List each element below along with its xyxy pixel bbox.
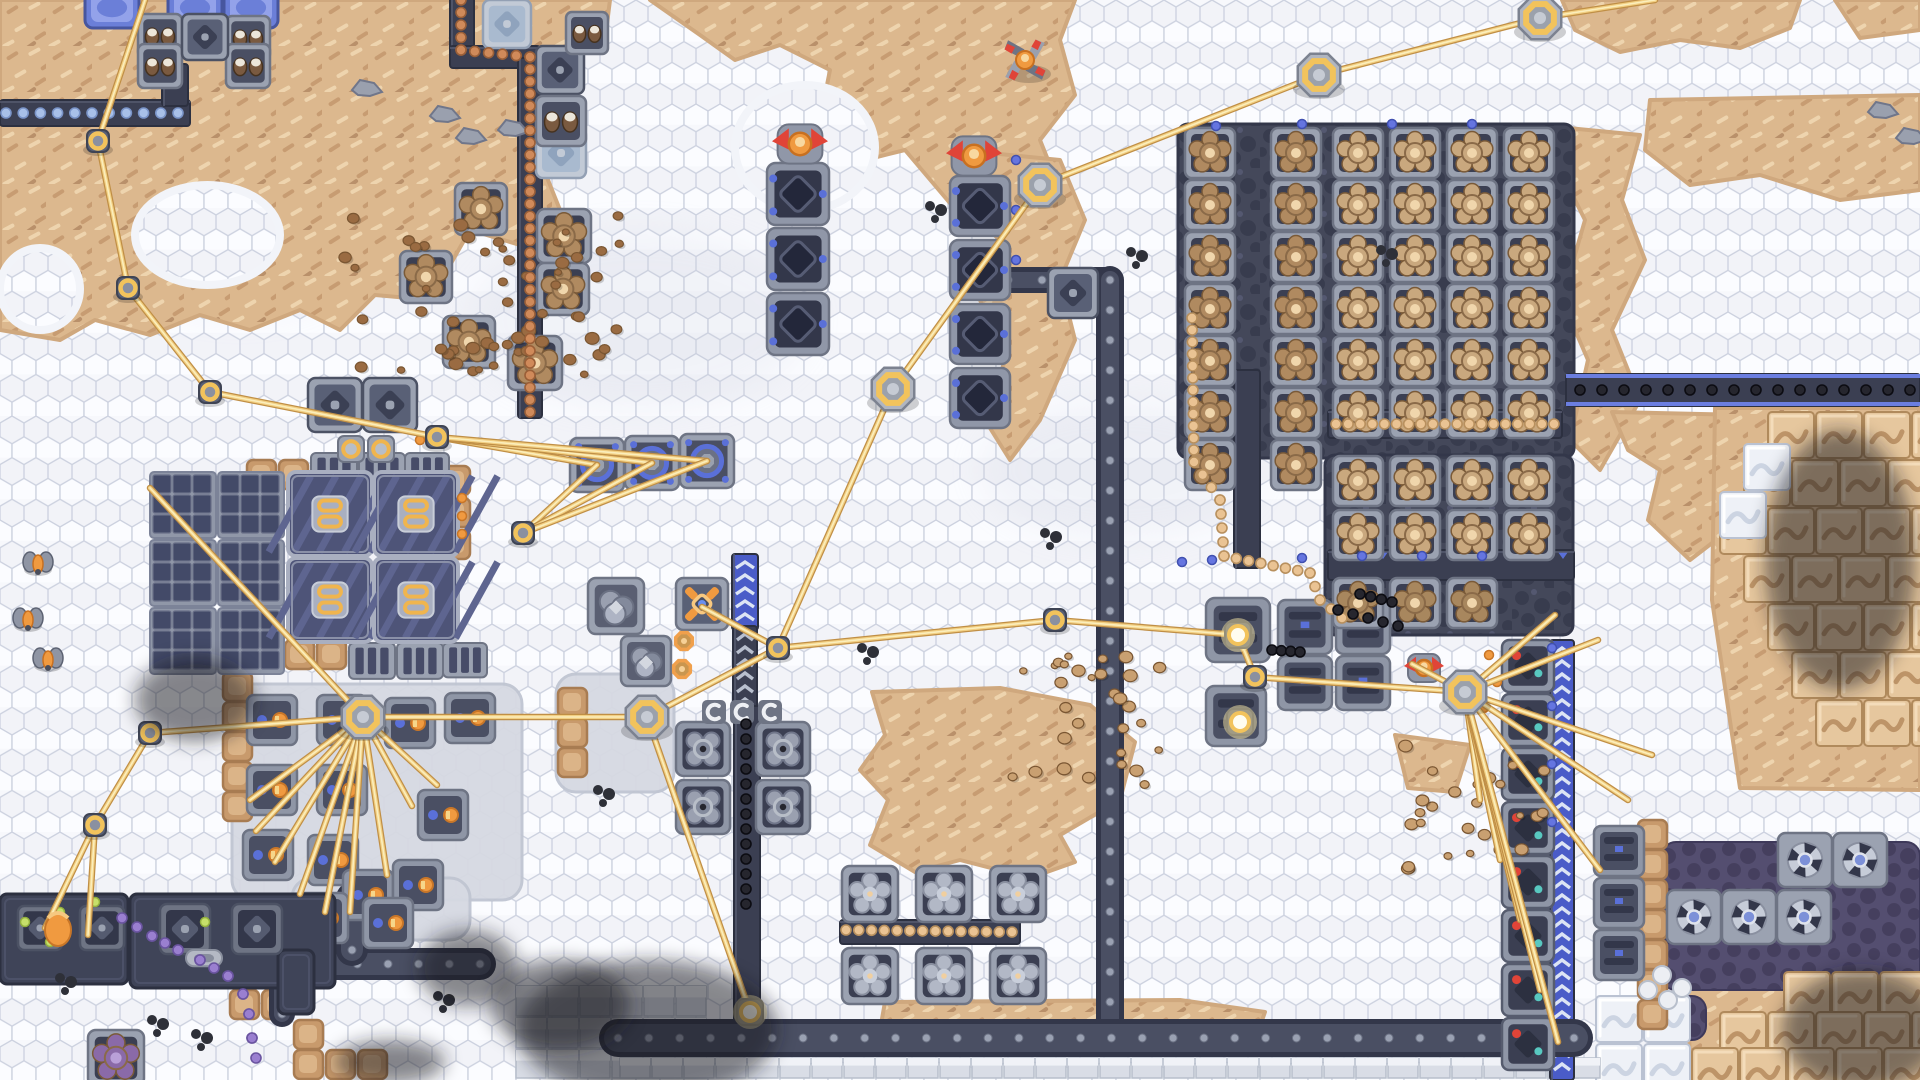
panel-block[interactable] [443, 643, 487, 677]
smelter-machine[interactable] [138, 44, 182, 88]
assembler-machine[interactable] [483, 0, 531, 48]
blue-item-dot [1548, 760, 1557, 769]
wall-rivet [1106, 366, 1114, 374]
lime-item-dot [201, 918, 210, 927]
wall-rivet [892, 1034, 900, 1042]
wall-rivet [1200, 1034, 1208, 1042]
sandstone-cliff-row [1816, 700, 1920, 746]
crusher-machine[interactable] [621, 636, 671, 686]
turret[interactable] [946, 136, 1002, 175]
mining-drill[interactable] [1271, 128, 1321, 178]
mining-drill[interactable] [1504, 456, 1554, 506]
reactor-machine[interactable] [950, 176, 1010, 236]
mining-drill[interactable] [1185, 128, 1235, 178]
turret[interactable] [772, 124, 828, 163]
power-pole-small[interactable] [1240, 666, 1270, 692]
wall-rivet [1447, 1034, 1455, 1042]
game-viewport [0, 0, 1920, 1080]
pump-machine[interactable] [842, 866, 898, 922]
mining-drill[interactable] [1271, 284, 1321, 334]
mining-drill[interactable] [1447, 128, 1497, 178]
mining-drill[interactable] [1447, 284, 1497, 334]
smoke-soot [1765, 430, 1915, 690]
mining-drill[interactable] [1504, 128, 1554, 178]
mining-drill[interactable] [1333, 510, 1383, 560]
brick-tile [558, 748, 587, 777]
blue-item-dot [1298, 554, 1307, 563]
inserter[interactable] [758, 700, 782, 724]
wall-rivet [1138, 1034, 1146, 1042]
lamp[interactable] [1221, 618, 1255, 652]
bug-unit[interactable] [13, 608, 43, 632]
wall-rivet [1015, 1034, 1023, 1042]
blue-item-dot [1388, 120, 1397, 129]
inserter[interactable] [702, 700, 726, 724]
mining-drill[interactable] [1504, 510, 1554, 560]
wall-rivet [799, 1034, 807, 1042]
gate-machine[interactable] [1667, 890, 1721, 944]
wall-rivet [830, 1034, 838, 1042]
assembler-machine[interactable] [1048, 268, 1098, 318]
mining-drill[interactable] [1447, 456, 1497, 506]
pump-machine[interactable] [990, 866, 1046, 922]
mining-drill[interactable] [1185, 232, 1235, 282]
power-pole-small[interactable] [83, 130, 113, 156]
wall-rivet [384, 960, 392, 968]
power-pole-small[interactable] [80, 814, 110, 840]
blue-item-dot [1478, 552, 1487, 561]
wall-rivet [1106, 276, 1114, 284]
power-pole-small[interactable] [763, 637, 793, 663]
mining-drill[interactable] [1185, 180, 1235, 230]
conveyor-belt[interactable] [1234, 370, 1260, 568]
mining-drill[interactable] [1504, 232, 1554, 282]
smoke-soot [135, 658, 255, 742]
wall-rivet [1106, 908, 1114, 916]
blue-item-dot [1548, 644, 1557, 653]
wall-rivet [1107, 1034, 1115, 1042]
blue-item-dot [1212, 122, 1221, 131]
mining-drill[interactable] [1390, 388, 1440, 438]
wall-rivet [1354, 1034, 1362, 1042]
processing-machine[interactable] [676, 722, 730, 776]
mining-drill[interactable] [1390, 232, 1440, 282]
reactor-machine[interactable] [767, 293, 829, 355]
wall-rivet [1477, 1034, 1485, 1042]
dark-plant[interactable] [278, 950, 314, 1014]
mining-drill[interactable] [1504, 284, 1554, 334]
blue-item-dot [1012, 156, 1021, 165]
wall-rivet [1106, 727, 1114, 735]
mining-drill[interactable] [1447, 336, 1497, 386]
mining-drill[interactable] [537, 263, 589, 315]
furnace[interactable] [363, 898, 413, 948]
mining-drill[interactable] [1271, 388, 1321, 438]
blue-item-dot [1208, 556, 1217, 565]
wall-rivet [1106, 487, 1114, 495]
wall-rivet [1106, 968, 1114, 976]
ice-cliff-row [1596, 1044, 1690, 1080]
wall-rivet [1106, 787, 1114, 795]
furnace[interactable] [243, 830, 293, 880]
wall-rivet [1106, 426, 1114, 434]
pump-machine[interactable] [842, 948, 898, 1004]
blue-item-dot [1178, 558, 1187, 567]
brick-tile [294, 1020, 323, 1049]
game-map[interactable] [0, 0, 1920, 1080]
boulder-decal [1653, 966, 1671, 984]
mining-drill[interactable] [1390, 128, 1440, 178]
boulder-decal [1639, 981, 1657, 999]
wall-rivet [1106, 547, 1114, 555]
storage-chest[interactable] [85, 0, 139, 28]
processing-machine[interactable] [756, 722, 810, 776]
conveyor-belt[interactable] [732, 554, 758, 630]
orange-item-dot [458, 494, 467, 503]
wall-rivet [1106, 396, 1114, 404]
smelter-machine[interactable] [536, 96, 586, 146]
wall-rivet [1231, 1034, 1239, 1042]
brick-tile [558, 688, 587, 717]
orange-item-dot [458, 512, 467, 521]
mining-drill[interactable] [1271, 336, 1321, 386]
wall-rivet [1570, 1034, 1578, 1042]
wall-rivet [1106, 938, 1114, 946]
wall-rivet [1416, 1034, 1424, 1042]
pump-machine[interactable] [916, 866, 972, 922]
wall-rivet [1106, 456, 1114, 464]
mining-drill[interactable] [1447, 232, 1497, 282]
bug-unit[interactable] [23, 552, 53, 576]
mining-drill[interactable] [1390, 456, 1440, 506]
blue-item-dot [1548, 818, 1557, 827]
orange-item-dot [1485, 651, 1494, 660]
mining-drill[interactable] [1447, 578, 1497, 628]
wall-rivet [1106, 577, 1114, 585]
power-pole-small[interactable] [422, 426, 452, 452]
orange-item-dot [458, 530, 467, 539]
processing-machine[interactable] [756, 780, 810, 834]
wall-rivet [861, 1034, 869, 1042]
reactor-machine[interactable] [950, 304, 1010, 364]
mining-drill[interactable] [1390, 510, 1440, 560]
blue-item-dot [1298, 120, 1307, 129]
power-connector-tiny[interactable] [676, 633, 693, 650]
smoke-soot [490, 960, 630, 1050]
wall-rivet [1106, 517, 1114, 525]
wall-segment[interactable] [1106, 276, 1114, 1036]
smelter-machine[interactable] [566, 12, 608, 54]
mining-drill[interactable] [1271, 232, 1321, 282]
reactor-machine[interactable] [767, 163, 829, 225]
gate-machine[interactable] [1777, 890, 1831, 944]
reactor-machine[interactable] [767, 228, 829, 290]
mining-drill[interactable] [1333, 456, 1383, 506]
utility-box[interactable] [1594, 878, 1644, 928]
coil-box[interactable] [368, 436, 394, 462]
wall-rivet [1077, 1034, 1085, 1042]
mining-drill[interactable] [1271, 440, 1321, 490]
blue-item-dot [1468, 120, 1477, 129]
power-pole-small[interactable] [113, 277, 143, 303]
mining-drill[interactable] [1333, 336, 1383, 386]
mining-drill[interactable] [1333, 180, 1383, 230]
wall-rivet [1106, 607, 1114, 615]
wall-rivet [1106, 878, 1114, 886]
power-connector-tiny[interactable] [674, 661, 691, 678]
wall-rivet [1106, 336, 1114, 344]
utility-box[interactable] [1278, 600, 1332, 654]
pump-machine[interactable] [990, 948, 1046, 1004]
brick-tile [294, 1050, 323, 1079]
brick-tile [558, 718, 587, 747]
wall-rivet [953, 1034, 961, 1042]
pump-machine[interactable] [916, 948, 972, 1004]
brick-tile [317, 640, 346, 669]
wall-rivet [1323, 1034, 1331, 1042]
mining-drill[interactable] [1333, 388, 1383, 438]
mining-drill[interactable] [1333, 128, 1383, 178]
mining-drill[interactable] [1504, 180, 1554, 230]
furnace-lit[interactable] [1502, 1018, 1554, 1070]
ice-cliff-row [1720, 492, 1766, 538]
mining-drill[interactable] [1447, 510, 1497, 560]
wall-rivet [1106, 757, 1114, 765]
panel-block[interactable] [397, 643, 443, 679]
assembler-machine[interactable] [308, 378, 362, 432]
wall-rivet [1106, 637, 1114, 645]
wall-rivet [1046, 1034, 1054, 1042]
mining-drill[interactable] [1390, 336, 1440, 386]
wall-rivet [1038, 276, 1046, 284]
panel-block[interactable] [349, 643, 395, 679]
snow-patch [0, 248, 80, 330]
mining-drill[interactable] [1333, 232, 1383, 282]
wall-rivet [984, 1034, 992, 1042]
utility-box[interactable] [1594, 930, 1644, 980]
lamp[interactable] [1223, 705, 1257, 739]
mining-drill[interactable] [1447, 388, 1497, 438]
mining-drill[interactable] [400, 251, 452, 303]
gate-machine[interactable] [1778, 833, 1832, 887]
wall-rivet [1169, 1034, 1177, 1042]
power-pole-small[interactable] [1040, 609, 1070, 635]
power-pole-large[interactable] [1514, 0, 1566, 42]
wall-rivet [1106, 817, 1114, 825]
blue-item-dot [1012, 256, 1021, 265]
solar-panel-block[interactable] [218, 472, 284, 538]
gate-machine[interactable] [1833, 833, 1887, 887]
wall-rivet [348, 946, 356, 954]
reactor-machine[interactable] [950, 368, 1010, 428]
furnace[interactable] [418, 790, 468, 840]
wall-rivet [922, 1034, 930, 1042]
assembler-machine[interactable] [232, 904, 282, 954]
wall-rivet [1106, 998, 1114, 1006]
wall-rivet [1262, 1034, 1270, 1042]
coil-box[interactable] [338, 436, 364, 462]
bug-unit[interactable] [33, 648, 63, 672]
mining-drill[interactable] [1504, 388, 1554, 438]
smelter-machine[interactable] [226, 44, 270, 88]
wall-rivet [1106, 306, 1114, 314]
creature[interactable] [45, 913, 71, 946]
mining-drill[interactable] [88, 1030, 144, 1080]
wall-rivet [1385, 1034, 1393, 1042]
mining-drill[interactable] [1447, 180, 1497, 230]
wall-rivet [1106, 848, 1114, 856]
wall-rivet [1292, 1034, 1300, 1042]
mining-drill[interactable] [1390, 180, 1440, 230]
mining-drill[interactable] [1271, 180, 1321, 230]
mining-drill[interactable] [1390, 284, 1440, 334]
mining-drill[interactable] [1504, 336, 1554, 386]
mining-drill[interactable] [537, 209, 591, 263]
lime-item-dot [21, 918, 30, 927]
power-pole-small[interactable] [508, 522, 538, 548]
gate-machine[interactable] [1722, 890, 1776, 944]
blue-item-dot [1548, 702, 1557, 711]
snow-patch [135, 185, 280, 285]
boulder-decal [1659, 991, 1677, 1009]
mining-drill[interactable] [1333, 284, 1383, 334]
blue-item-dot [1358, 552, 1367, 561]
crusher-machine[interactable] [588, 578, 644, 634]
blue-item-dot [1418, 552, 1427, 561]
power-pole-small[interactable] [195, 381, 225, 407]
assembler-machine[interactable] [182, 14, 228, 60]
